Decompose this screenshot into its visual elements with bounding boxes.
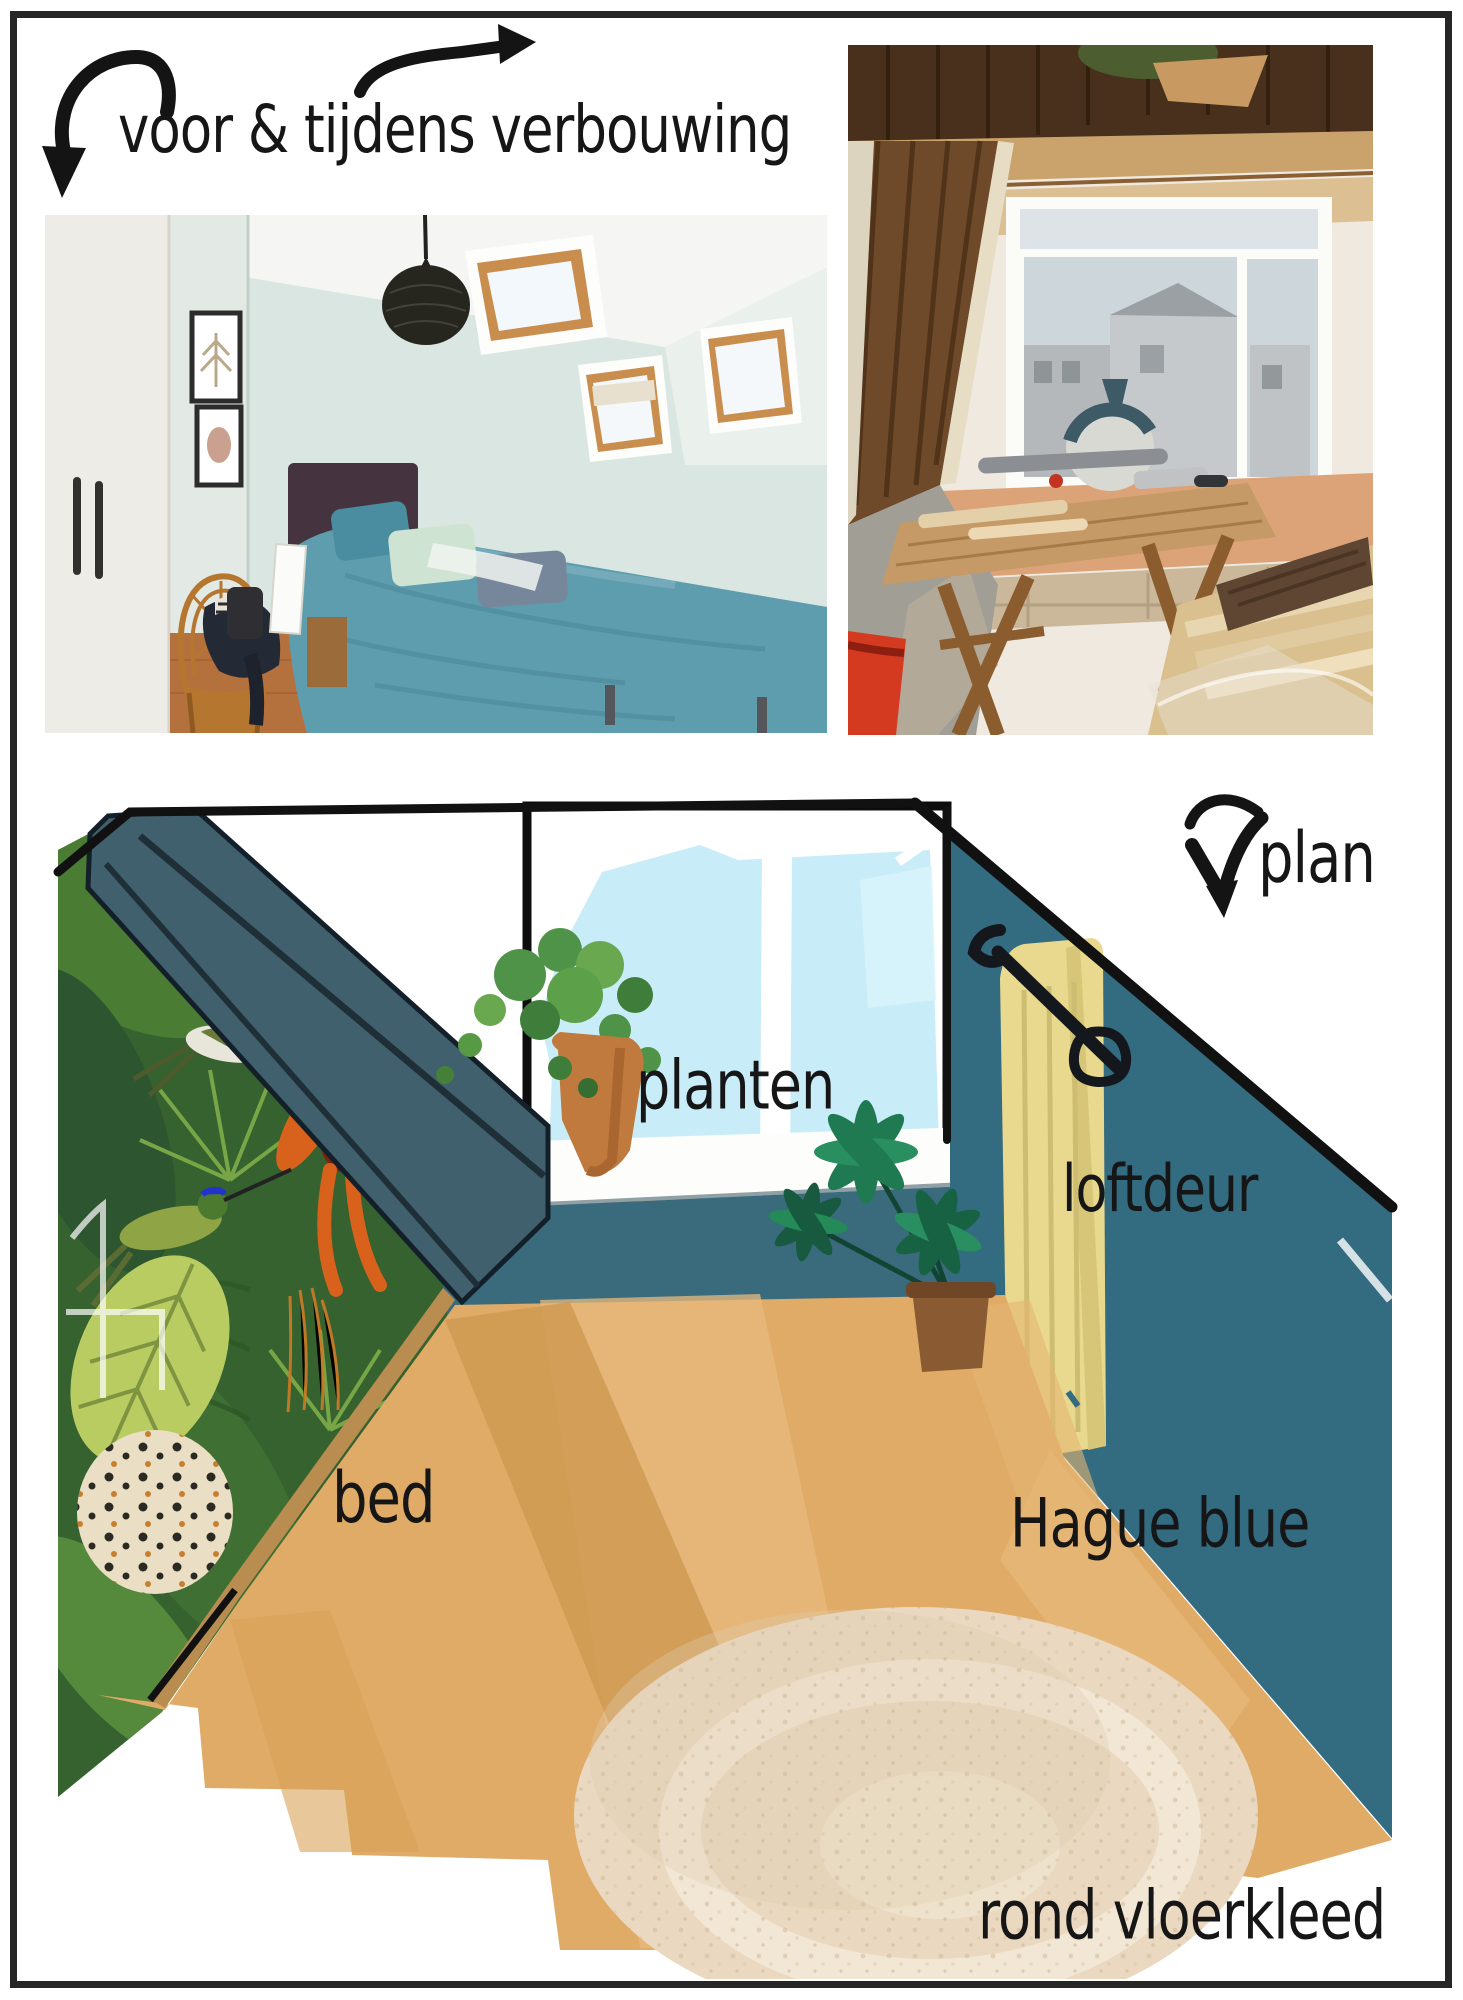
moodboard-page: voor & tijdens verbouwing: [0, 0, 1463, 2000]
arrow-right-icon: [360, 24, 536, 92]
leopard-pattern: [77, 1430, 233, 1594]
room-plan-drawing: [0, 0, 1463, 2000]
bed-label: bed: [332, 1458, 435, 1539]
loftdeur-label: loftdeur: [1062, 1152, 1257, 1227]
plan-label: plan: [1258, 818, 1375, 899]
planten-label: planten: [636, 1046, 834, 1125]
plan-arrow-icon: [1190, 800, 1262, 918]
rug-label: rond vloerkleed: [978, 1876, 1385, 1955]
header-title: voor & tijdens verbouwing: [118, 92, 791, 168]
hague-blue-label: Hague blue: [1010, 1484, 1309, 1563]
